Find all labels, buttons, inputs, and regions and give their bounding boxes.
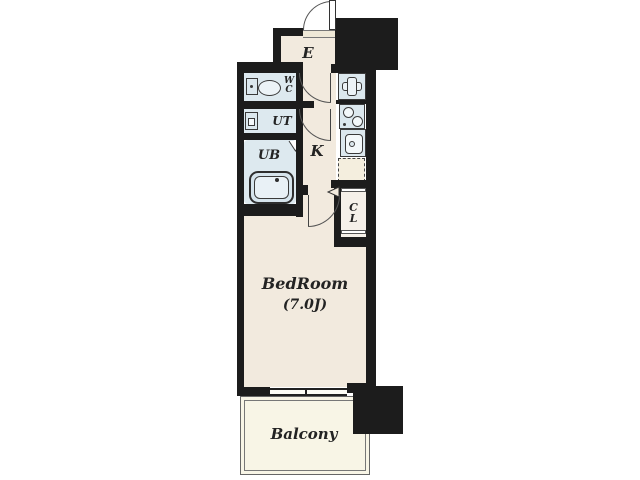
unit-bath-label: UB xyxy=(255,147,283,164)
wc-label: W C xyxy=(282,72,296,100)
wall-closet-bottom xyxy=(334,237,376,247)
utility-basin-icon xyxy=(245,112,258,130)
toilet-bowl-icon xyxy=(258,80,281,96)
floor-plan-canvas: E W C UT UB K C L BedRoom (7.0J) Balcony xyxy=(0,0,640,480)
wall-bedroom-bottom-left xyxy=(237,387,270,396)
sink-icon xyxy=(340,129,366,157)
balcony-label: Balcony xyxy=(240,424,368,444)
entrance-label: E xyxy=(281,40,335,66)
door-swing-arrow-icon xyxy=(326,186,340,198)
bathtub-icon xyxy=(249,171,294,204)
utility-label: UT xyxy=(268,112,296,130)
closet-door-tick-bottom xyxy=(341,230,366,234)
entrance-door-arc xyxy=(303,1,332,30)
wall-left-outer xyxy=(237,62,244,396)
bath-drain-icon xyxy=(275,178,279,182)
toilet-tank-icon xyxy=(246,78,258,95)
wall-right-outer xyxy=(366,60,376,390)
closet-door-tick-top xyxy=(341,188,366,192)
wall-bedroom-door-stub xyxy=(296,185,308,195)
bedroom-size-label: (7.0J) xyxy=(244,296,366,314)
bedroom-window xyxy=(270,388,347,396)
washing-machine-pan-icon xyxy=(338,73,366,100)
kitchen-label: K xyxy=(305,142,329,160)
wall-bath-bottom xyxy=(237,204,303,216)
stove-icon xyxy=(339,104,365,129)
bedroom-label: BedRoom xyxy=(244,274,366,294)
refrigerator-space xyxy=(338,158,365,182)
wall-wc-utility xyxy=(237,101,303,109)
wall-entrance-top xyxy=(273,28,304,36)
entrance-door-leaf xyxy=(329,0,336,30)
wall-door-jamb xyxy=(303,101,314,108)
wall-utility-bath xyxy=(244,133,303,140)
entrance-step xyxy=(303,30,335,38)
closet-label: C L xyxy=(345,197,362,229)
